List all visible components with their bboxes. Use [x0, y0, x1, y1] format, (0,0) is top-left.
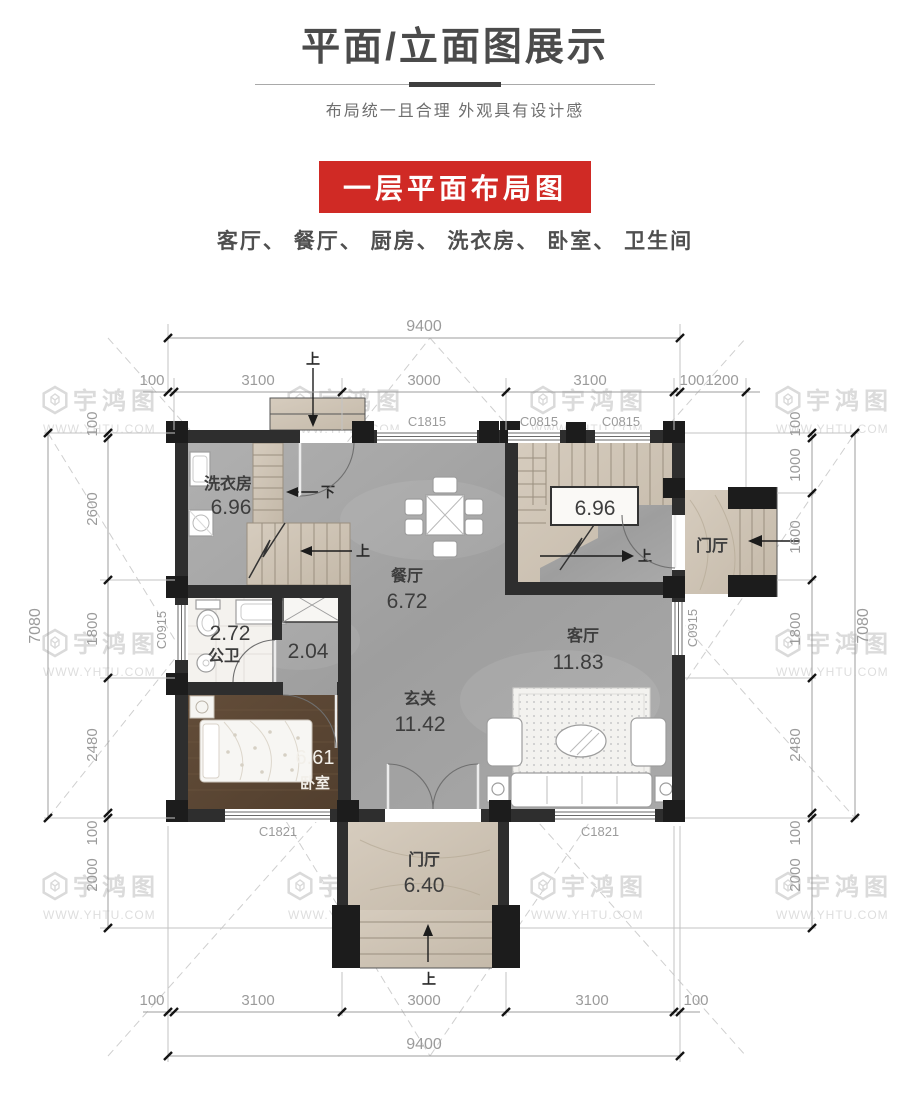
floor-plan: 下 上 6.96 上 — [154, 351, 800, 987]
bedroom-area: 6.61 — [296, 747, 335, 769]
armchair — [631, 718, 666, 766]
dim-top-total: 9400 — [406, 318, 442, 335]
toilet — [196, 600, 220, 609]
bath-area: 2.72 — [210, 622, 251, 645]
stair-down-mark: 下 — [321, 484, 335, 500]
dim: 1800 — [787, 612, 804, 645]
foyer-area: 11.42 — [395, 713, 446, 736]
room-list: 客厅、 餐厅、 厨房、 洗衣房、 卧室、 卫生间 — [0, 225, 910, 255]
dim-right-total: 7080 — [855, 608, 872, 644]
dim: 100 — [84, 820, 101, 845]
hall-area: 2.04 — [288, 640, 329, 663]
living-area: 11.83 — [553, 651, 604, 674]
window-label: C0915 — [685, 609, 700, 647]
dim: 100 — [787, 411, 804, 436]
window-label: C0815 — [602, 414, 640, 429]
dim: 2480 — [84, 728, 101, 761]
dim: 3100 — [241, 372, 274, 389]
dim: 3000 — [407, 992, 440, 1009]
dim: 2000 — [787, 858, 804, 891]
dim: 1800 — [84, 612, 101, 645]
bath-label: 公卫 — [208, 647, 240, 665]
window-label: C0815 — [520, 414, 558, 429]
bedroom-label: 卧室 — [300, 774, 330, 792]
window-label: C0915 — [154, 611, 169, 649]
pillow — [203, 724, 219, 778]
dim: 3100 — [575, 992, 608, 1009]
window-c0915-right — [672, 602, 685, 655]
laundry-area: 6.96 — [211, 496, 252, 519]
living-label: 客厅 — [567, 626, 599, 645]
top-dimensions: 9400 100 3100 3000 3100 100 1200 — [139, 318, 760, 396]
dim: 2000 — [84, 858, 101, 891]
page-subtitle: 布局统一且合理 外观具有设计感 — [0, 97, 910, 121]
porch-up-mark: 上 — [422, 971, 436, 987]
stair-area: 6.96 — [575, 497, 616, 520]
dim-left-total: 7080 — [27, 608, 44, 644]
window-label: C1821 — [259, 824, 297, 839]
title-divider-accent — [409, 82, 501, 87]
nightstand — [190, 696, 214, 718]
dim: 100 — [139, 372, 164, 389]
window-c1821-left — [225, 809, 330, 822]
dim: 3100 — [241, 992, 274, 1009]
dim: 2600 — [84, 492, 101, 525]
section-banner: 一层平面布局图 — [319, 161, 591, 213]
bottom-dimensions: 100 3100 3000 3100 100 9400 — [139, 992, 708, 1060]
dim: 1000 — [787, 448, 804, 481]
front-porch-area: 6.40 — [404, 874, 445, 897]
stair-up-mark: 上 — [356, 543, 370, 559]
dim: 100 — [679, 372, 704, 389]
window-c1815 — [377, 430, 477, 443]
dim: 100 — [84, 411, 101, 436]
foyer-label: 玄关 — [404, 689, 436, 708]
dim: 1600 — [787, 520, 804, 553]
window-c1821-right — [555, 809, 655, 822]
window-label: C1821 — [581, 824, 619, 839]
armchair — [487, 718, 522, 766]
dim: 100 — [683, 992, 708, 1009]
side-porch-label: 门厅 — [696, 536, 728, 555]
window-label: C1815 — [408, 414, 446, 429]
front-porch-label: 门厅 — [408, 850, 440, 869]
title-divider — [255, 84, 655, 85]
window-c0815-b — [595, 430, 650, 443]
dim: 100 — [139, 992, 164, 1009]
living-room-furniture — [487, 688, 677, 807]
laundry-label: 洗衣房 — [204, 474, 252, 493]
dim: 3100 — [573, 372, 606, 389]
dining-label: 餐厅 — [390, 566, 423, 585]
dim: 3000 — [407, 372, 440, 389]
dim: 1200 — [705, 372, 738, 389]
window-c0815-a — [508, 430, 560, 443]
page-title: 平面/立面图展示 — [0, 16, 910, 72]
header: 平面/立面图展示 布局统一且合理 外观具有设计感 一层平面布局图 客厅、 餐厅、… — [0, 0, 910, 255]
window-c0915-left — [175, 605, 188, 660]
dim-bottom-total: 9400 — [406, 1036, 442, 1053]
dining-area: 6.72 — [387, 590, 428, 613]
dim: 2480 — [787, 728, 804, 761]
stoop-up-mark: 上 — [306, 351, 320, 367]
dim: 100 — [787, 820, 804, 845]
